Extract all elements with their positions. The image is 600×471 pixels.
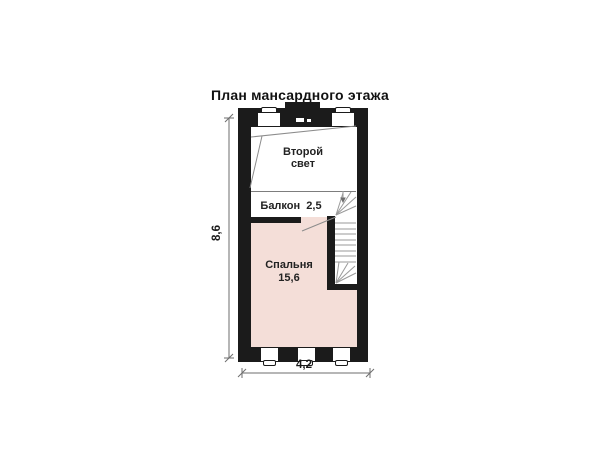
bedroom-label: Спальня 15,6 (249, 259, 329, 284)
bedroom-area-value: 15,6 (249, 272, 329, 285)
floor-plan-page: План мансардного этажа (0, 0, 600, 471)
dimension-value-horizontal: 4,2 (284, 359, 324, 371)
slope-leader-line (302, 217, 336, 231)
balcony-area-value: 2,5 (306, 200, 321, 212)
second-light-label-line1: Второй (263, 146, 343, 158)
dimension-line-vertical (224, 114, 234, 362)
dimension-value-vertical: 8,6 (211, 220, 223, 246)
bedroom-name: Спальня (249, 259, 329, 272)
balcony-label: Балкон 2,5 (249, 200, 333, 212)
plan-lines-layer (0, 0, 600, 471)
staircase (335, 191, 356, 283)
balcony-name: Балкон (260, 200, 300, 212)
second-light-label: Второй свет (263, 146, 343, 170)
second-light-label-line2: свет (263, 158, 343, 170)
